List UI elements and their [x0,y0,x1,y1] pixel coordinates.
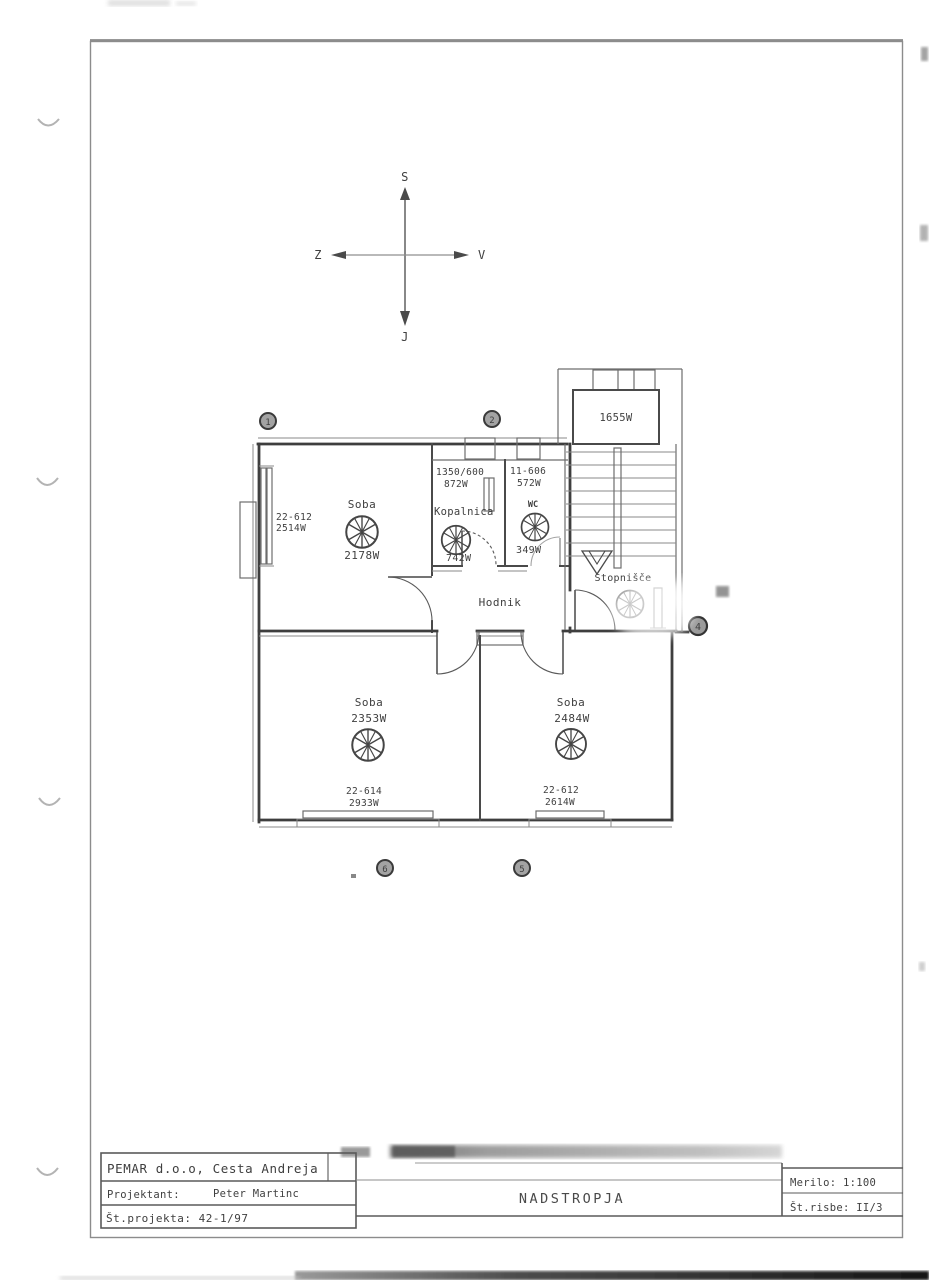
compass-south-label: J [401,330,409,344]
soba-nw-name: Soba [348,498,377,511]
radiator-soba-se [529,811,611,827]
grid-marker-5-label: 5 [519,865,524,875]
wc-heat-load: 349W [516,545,542,556]
valve-icon [522,514,549,541]
soba-nw-radiator-type: 22-612 [276,512,312,523]
grid-marker-5: 5 [514,860,530,876]
binder-hole-marks [37,119,60,1175]
grid-marker-2: 2 [484,411,500,427]
compass-west-label: Z [314,248,322,262]
soba-sw-radiator-power: 2933W [349,798,379,809]
valve-icon [346,516,378,548]
soba-se-radiator-power: 2614W [545,797,575,808]
soba-se-heat-load: 2484W [554,712,590,725]
radiator-soba-sw [297,811,439,827]
drawing-scale: Merilo: 1:100 [790,1177,876,1189]
door-soba-nw [388,577,432,621]
compass-east-label: V [478,248,486,262]
scan-smudges [610,577,729,640]
soba-se-radiator-type: 22-612 [543,785,579,796]
soba-sw-radiator-type: 22-614 [346,786,382,797]
stair-direction-arrow-icon [582,551,612,574]
valve-icon [442,526,471,555]
valve-icon [352,729,384,761]
valve-icon [556,729,586,759]
kopalnica-radiator-type: 1350/600 [436,467,484,478]
compass-north-label: S [401,170,409,184]
soba-nw-heat-load: 2178W [344,549,380,562]
sheet-number: Št.risbe: II/3 [790,1201,883,1214]
stairwell-heat-load: 1655W [599,412,632,424]
grid-marker-6: 6 [377,860,393,876]
soba-sw-name: Soba [355,696,384,709]
grid-marker-4-label: 4 [695,622,701,633]
kopalnica-radiator-power: 872W [444,479,468,490]
kopalnica-heat-load: 742W [446,553,472,564]
floor-plan-drawing: S Z V J 1 2 4 6 5 [0,0,929,1280]
soba-nw-radiator-power: 2514W [276,523,306,534]
project-number: Št.projekta: 42-1/97 [106,1212,248,1225]
radiator-soba-nw [240,466,274,578]
wc-radiator-type: 11-606 [510,466,546,477]
wc-radiator-power: 572W [517,478,541,489]
hodnik-name: Hodnik [479,596,522,609]
page-border [90,40,903,1238]
designer-label: Projektant: [107,1189,180,1201]
door-soba-se [521,632,563,674]
bottom-scan-band [60,1271,929,1280]
grid-marker-2-label: 2 [489,416,494,426]
north-arrow-icon: S Z V J [314,170,485,344]
soba-sw-heat-load: 2353W [351,712,387,725]
door-soba-sw [437,632,479,674]
wc-name: WC [528,500,538,510]
grid-marker-1-label: 1 [265,418,270,428]
scanned-drawing-page: S Z V J 1 2 4 6 5 [0,0,929,1280]
company-name: PEMAR d.o.o, Cesta Andreja [107,1161,318,1176]
drawing-title: NADSTROPJA [519,1191,625,1207]
title-block-smudge [341,1145,782,1158]
title-block: PEMAR d.o.o, Cesta Andreja Projektant: P… [101,1145,903,1228]
kopalnica-name: Kopalnica [434,506,494,518]
soba-se-name: Soba [557,696,586,709]
designer-name: Peter Martinc [213,1188,299,1200]
door-stopnisce [575,590,615,630]
grid-marker-6-label: 6 [382,865,387,875]
grid-marker-1: 1 [260,413,276,429]
floor-plan-walls [253,438,688,827]
